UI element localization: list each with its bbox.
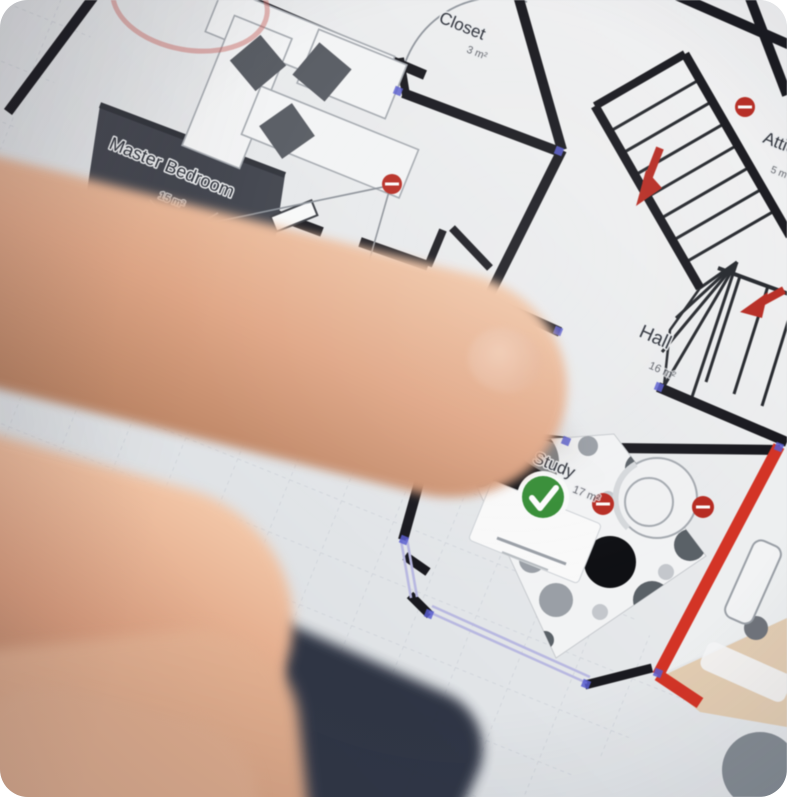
floorplan-photo: Closet 3 m² Master Bedroom 15 m² Hall 16… <box>0 0 787 797</box>
photo-of-finger-on-floorplan: Closet 3 m² Master Bedroom 15 m² Hall 16… <box>0 0 787 797</box>
warning-marker-icon <box>735 97 755 117</box>
wall <box>612 448 780 450</box>
warning-marker-icon <box>382 174 402 194</box>
warning-marker-icon <box>692 496 714 518</box>
armchair <box>615 458 697 538</box>
